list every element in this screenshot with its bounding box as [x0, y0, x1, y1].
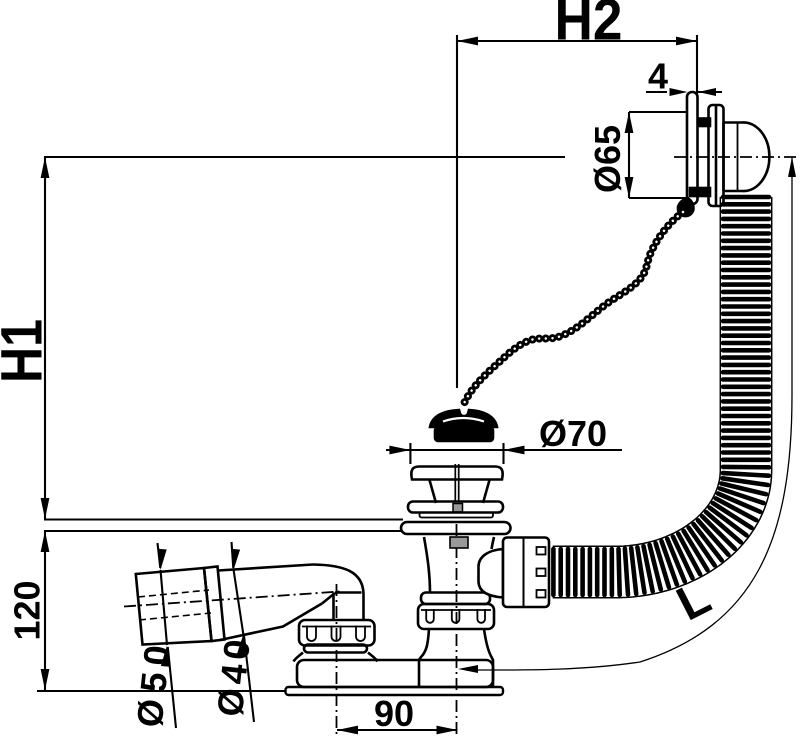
svg-text:4: 4: [648, 56, 668, 97]
svg-text:Ø70: Ø70: [539, 413, 607, 454]
svg-text:90: 90: [374, 693, 414, 734]
svg-text:120: 120: [7, 580, 48, 640]
svg-text:Ø65: Ø65: [587, 125, 628, 193]
svg-text:H1: H1: [0, 319, 55, 383]
svg-text:H2: H2: [555, 0, 623, 53]
svg-text:Ø40: Ø40: [209, 633, 258, 718]
